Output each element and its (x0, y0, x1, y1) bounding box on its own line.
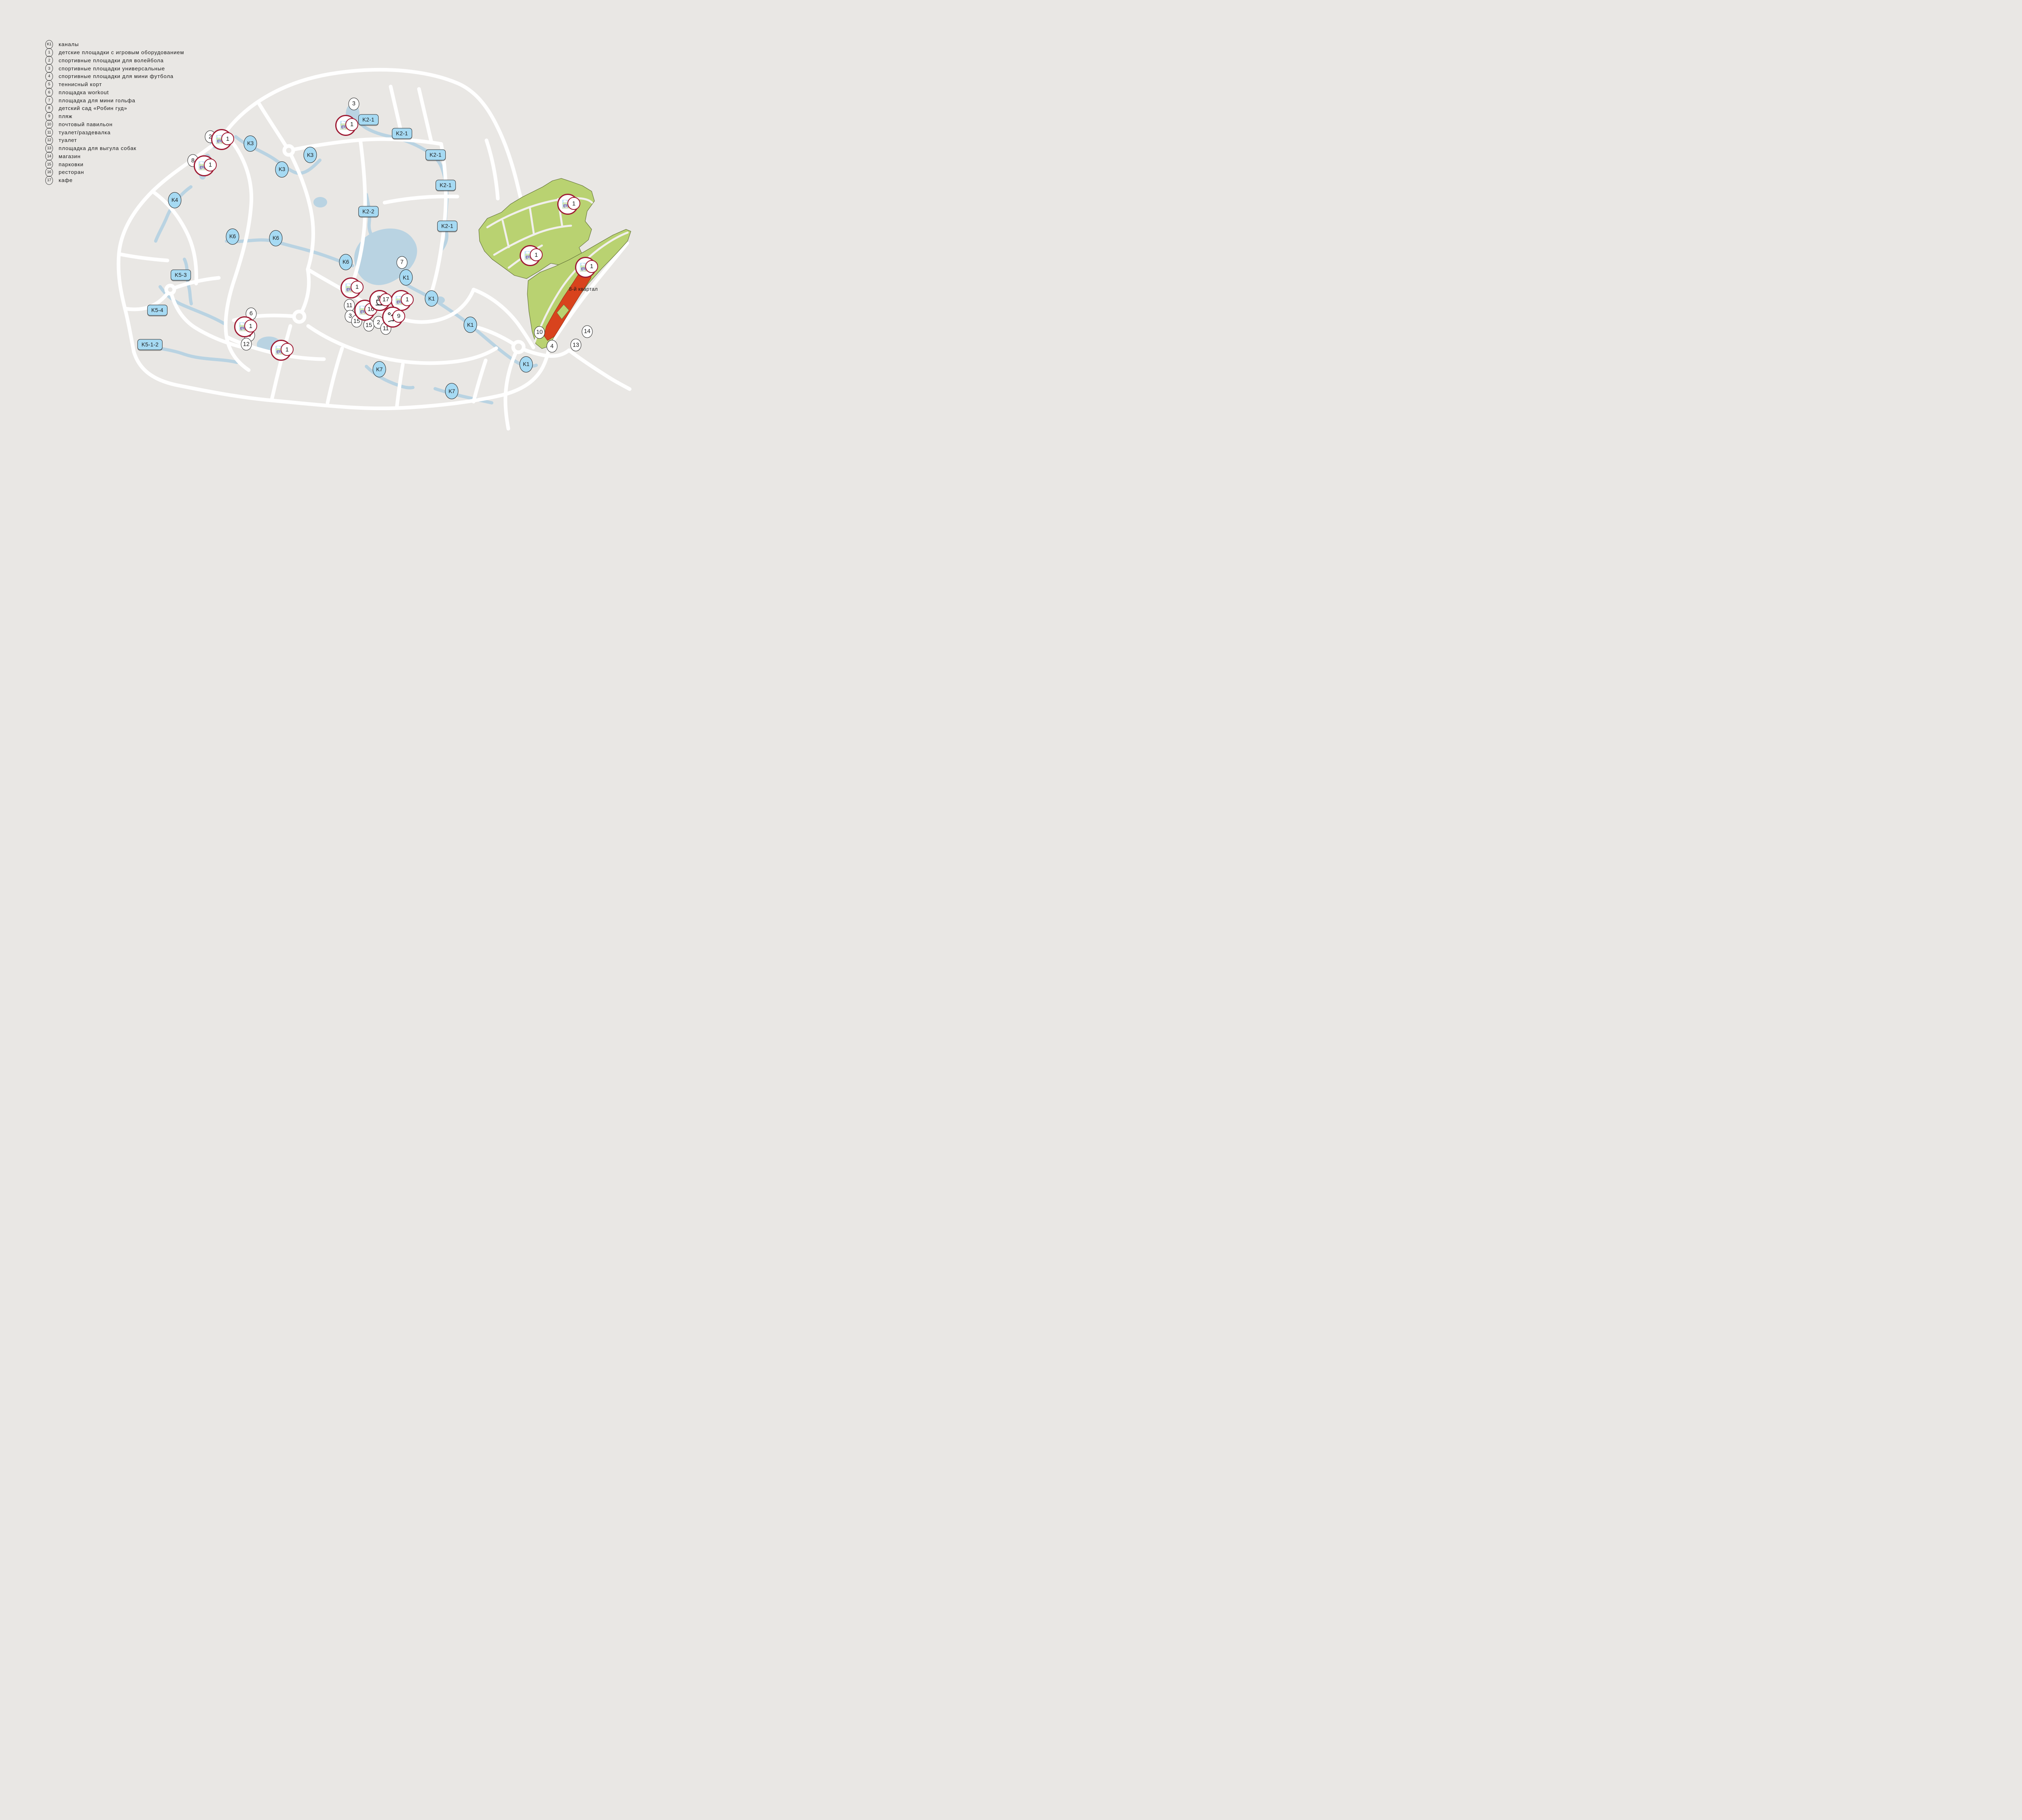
playground-marker[interactable]: 1 (341, 277, 362, 298)
playground-marker[interactable]: 1 (194, 155, 215, 176)
icon-marker-number: 1 (585, 260, 598, 273)
playground-marker[interactable]: 1 (211, 129, 232, 150)
canal-label-k3: K3 (244, 135, 257, 152)
amenity-marker-4[interactable]: 4 (546, 340, 557, 353)
canal-label-k5-4: K5-4 (147, 305, 167, 315)
icon-marker-number: 1 (401, 293, 414, 306)
canal-label-k7: K7 (372, 361, 386, 377)
playground-marker[interactable]: 1 (520, 245, 541, 266)
playground-marker[interactable]: 1 (234, 316, 255, 337)
district-label: 8-й квартал (569, 286, 598, 292)
masterplan-map-page: K1 каналы 1 детские площадки с игровым о… (0, 0, 634, 449)
canal-label-k2-1: K2-1 (358, 114, 379, 125)
amenity-marker-3[interactable]: 3 (348, 97, 359, 110)
icon-marker-number: 1 (567, 197, 580, 210)
playground-marker[interactable]: 1 (271, 340, 292, 361)
playground-marker[interactable]: 1 (335, 115, 356, 136)
icon-marker-number: 1 (351, 281, 364, 294)
canal-label-k1: K1 (519, 356, 533, 372)
canal-label-k5-1-2: K5-1-2 (137, 339, 163, 350)
canal-label-k3: K3 (275, 161, 288, 178)
icon-marker-number: 1 (345, 118, 358, 131)
canal-label-k2-2: K2-2 (358, 206, 379, 217)
icon-marker-number: 1 (530, 248, 543, 261)
amenity-marker-13[interactable]: 13 (571, 339, 582, 351)
canal-label-k6: K6 (269, 230, 282, 246)
playground-marker[interactable]: 1 (557, 194, 578, 215)
icon-marker-number: 9 (392, 310, 405, 323)
amenity-marker-12[interactable]: 12 (241, 338, 252, 351)
canal-label-k7: K7 (445, 383, 459, 399)
canal-label-k4: K4 (168, 192, 181, 208)
map-marker-layer: K3K3K3K4K6K6K6K1K1K1K1K7K7K2-1K2-1K2-1K2… (0, 0, 634, 449)
canal-label-k2-1: K2-1 (437, 221, 457, 232)
canal-label-k2-1: K2-1 (425, 150, 446, 161)
canal-label-k1: K1 (463, 317, 477, 333)
icon-marker-number: 1 (204, 159, 217, 171)
canal-label-k6: K6 (226, 229, 239, 245)
canal-label-k5-3: K5-3 (171, 270, 191, 281)
amenity-marker-15[interactable]: 15 (363, 319, 374, 332)
canal-label-k2-1: K2-1 (436, 180, 456, 191)
icon-marker-number: 1 (281, 343, 294, 356)
icon-marker-number: 17 (379, 293, 392, 306)
icon-marker-number: 1 (244, 320, 257, 332)
playground-marker[interactable]: 1 (575, 257, 596, 278)
amenity-marker-7[interactable]: 7 (396, 256, 407, 269)
icon-marker-number: 1 (221, 132, 234, 145)
amenity-marker-14[interactable]: 14 (582, 325, 592, 338)
canal-label-k2-1: K2-1 (392, 128, 412, 139)
canal-label-k1: K1 (399, 269, 412, 286)
canal-label-k3: K3 (304, 147, 317, 163)
canal-label-k1: K1 (425, 290, 438, 307)
beach-marker[interactable]: 9 (382, 307, 403, 328)
amenity-marker-10[interactable]: 10 (534, 326, 545, 339)
canal-label-k6: K6 (339, 254, 353, 270)
